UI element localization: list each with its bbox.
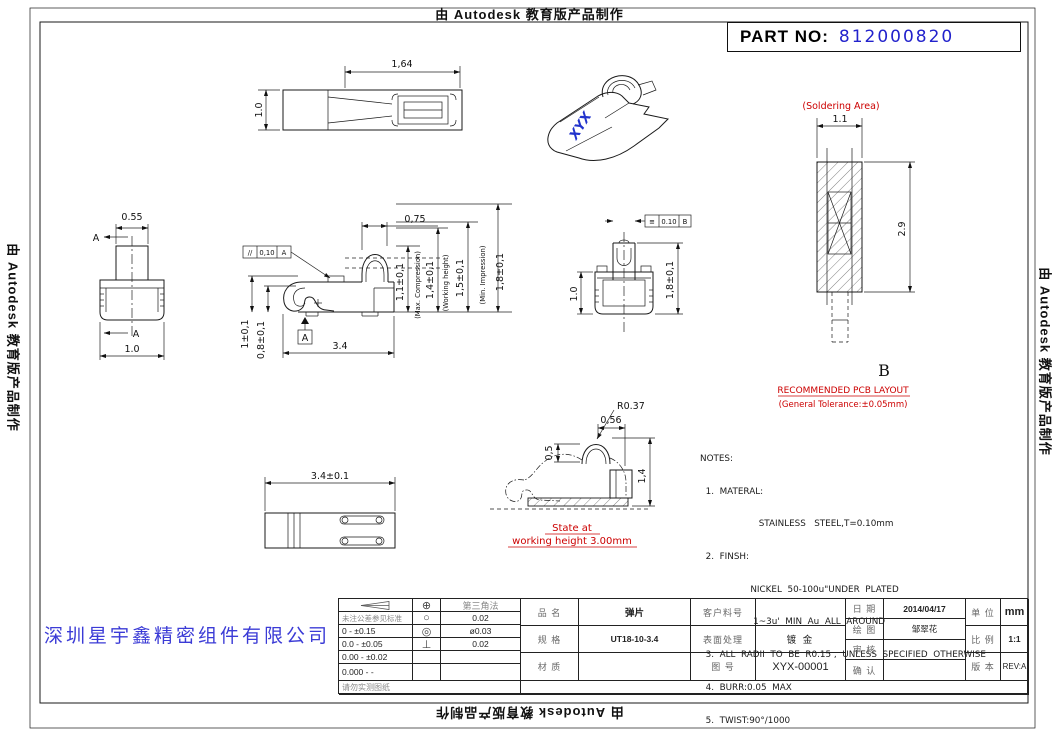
dim-rear-height: 1,8±0,1 <box>665 261 676 299</box>
drawn-by-label: 绘 图 <box>846 619 884 640</box>
section-label-a-top: A <box>93 233 100 244</box>
part-no-value: 812000820 <box>839 27 954 47</box>
stack-label-3: (Min. Impression) <box>479 245 487 304</box>
tolerance-symbol-empty <box>413 651 441 664</box>
customer-pn-label: 客户料号 <box>691 599 756 626</box>
drawing-no-label: 图 号 <box>691 653 756 681</box>
part-no-label: PART NO: <box>740 27 829 47</box>
parallelism-symbol: // <box>248 249 253 257</box>
parallelism-value: 0,10 <box>259 249 274 257</box>
material-label: 材 质 <box>521 653 579 681</box>
note-line: STAINLESS STEEL,T=0.10mm <box>700 519 986 530</box>
tolerance-value: 0.02 <box>441 612 521 625</box>
symmetry-value: 0.10 <box>661 218 676 226</box>
dim-solder-height: 2.9 <box>897 221 908 236</box>
dim-side-height: 1±0,1 <box>240 319 251 348</box>
dim-top-height: 1.0 <box>254 102 265 117</box>
do-not-measure-note: 请勿实测图纸 <box>339 681 521 695</box>
unit-value: mm <box>1001 599 1029 626</box>
datum-flag-a: A <box>302 333 309 344</box>
symmetry-datum: B <box>683 218 688 226</box>
dim-working-gap: 0,5 <box>544 445 555 460</box>
drawn-by-value: 邹翠花 <box>884 619 966 640</box>
position-symbol: ⊕ <box>413 599 441 612</box>
material-value <box>579 653 691 681</box>
stack-dim-4: 1,8±0,1 <box>495 253 506 291</box>
taper-symbol <box>359 600 393 611</box>
note-line: 2. FINSH: <box>700 552 986 563</box>
top-view: 1,64 1.0 <box>254 59 462 130</box>
dim-working-height: 1,4 <box>637 468 648 483</box>
checked-by-value <box>884 640 966 660</box>
note-line: NOTES: <box>700 454 986 465</box>
date-value: 2014/04/17 <box>884 599 966 619</box>
symmetry-symbol: ≡ <box>649 218 655 226</box>
empty-strip <box>521 681 1029 695</box>
date-label: 日 期 <box>846 599 884 619</box>
company-name: 深圳星宇鑫精密组件有限公司 <box>44 621 330 648</box>
unit-label: 单 位 <box>966 599 1001 626</box>
approved-by-label: 确 认 <box>846 660 884 681</box>
revision-value: REV:A <box>1001 653 1029 681</box>
stack-label-1: (Max. Compression) <box>414 251 422 319</box>
tolerance-row-label: 未注公差参见标准 <box>339 612 413 625</box>
dim-front-stem: 0.55 <box>121 212 142 223</box>
checked-by-label: 审 核 <box>846 640 884 660</box>
customer-pn-value <box>756 599 846 626</box>
isometric-view: XYX <box>548 76 668 161</box>
spec-value: UT18-10-3.4 <box>579 626 691 653</box>
revision-label: 版 本 <box>966 653 1001 681</box>
tolerance-value: ø0.03 <box>441 625 521 638</box>
tolerance-row-label: 0.0 - ±0.05 <box>339 638 413 651</box>
dim-side-inner-height: 0,8±0,1 <box>256 321 267 359</box>
concentricity-symbol: ◎ <box>413 625 441 638</box>
soldering-area-view: (Soldering Area) 1.1 2.9 B RECOMMENDED P… <box>777 101 915 410</box>
tolerance-value: 0.02 <box>441 638 521 651</box>
soldering-area-title: (Soldering Area) <box>802 101 879 112</box>
tolerance-row-label: 0.000 - - <box>339 664 413 681</box>
stack-label-2: (Working height) <box>442 254 450 311</box>
stack-dim-3: 1,5±0,1 <box>455 259 466 297</box>
perpendicularity-symbol: ⊥ <box>413 638 441 651</box>
note-line: 1. MATERAL: <box>700 487 986 498</box>
note-line: NICKEL 50-100u"UNDER PLATED <box>700 585 986 596</box>
tolerance-row-label: 0.00 - ±0.02 <box>339 651 413 664</box>
surface-label: 表面处理 <box>691 626 756 653</box>
working-caption-1: State at <box>552 523 592 534</box>
product-name-label: 品 名 <box>521 599 579 626</box>
title-block: ⊕ 第三角法 未注公差参见标准 ○ 0.02 0 - ±0.15 ◎ ø0.03… <box>338 598 1028 694</box>
front-view: 0.55 1.0 A A <box>93 212 164 360</box>
section-label-a-bottom: A <box>133 329 140 340</box>
projection-method: 第三角法 <box>441 599 521 612</box>
dim-top-width: 1,64 <box>391 59 412 70</box>
working-caption-2: working height 3.00mm <box>512 536 632 547</box>
spec-label: 规 格 <box>521 626 579 653</box>
rear-view: 1.0 1,8±0,1 ≡ 0.10 B <box>569 215 691 334</box>
dim-rear-width: 1.0 <box>569 286 580 301</box>
dim-solder-width: 1.1 <box>832 114 847 125</box>
dim-working-radius: R0.37 <box>617 401 645 412</box>
dim-front-width: 1.0 <box>124 344 139 355</box>
circularity-symbol: ○ <box>413 612 441 625</box>
drawing-no-value: XYX-00001 <box>756 653 846 681</box>
dim-working-width: 0,56 <box>600 415 621 426</box>
part-no-box: PART NO: 812000820 <box>727 22 1021 52</box>
dim-side-loop: 0,75 <box>404 214 425 225</box>
pcb-layout-tolerance: (General Tolerance:±0.05mm) <box>779 400 908 410</box>
tolerance-value <box>441 651 521 664</box>
stack-dim-2: 1,4±0,1 <box>425 261 436 299</box>
tolerance-value <box>441 664 521 681</box>
pcb-layout-title: RECOMMENDED PCB LAYOUT <box>777 386 909 396</box>
tolerance-symbol-empty <box>413 664 441 681</box>
approved-by-value <box>884 660 966 681</box>
view-label-b: B <box>878 361 890 380</box>
parallelism-datum: A <box>282 249 287 257</box>
bottom-view: 3.4±0.1 <box>265 471 395 548</box>
side-view: // 0,10 A A 3.4 1±0,1 0,8±0,1 <box>240 204 512 359</box>
dim-bottom-length: 3.4±0.1 <box>311 471 349 482</box>
stack-dim-1: 1,1±0,1 <box>395 263 406 301</box>
scale-value: 1:1 <box>1001 626 1029 653</box>
dim-side-length: 3.4 <box>332 341 347 352</box>
note-line: 5. TWIST:90°/1000 <box>700 716 986 727</box>
scale-label: 比 例 <box>966 626 1001 653</box>
drawing-sheet: 由 Autodesk 教育版产品制作 由 Autodesk 教育版产品制作 由 … <box>0 0 1059 737</box>
surface-value: 镀 金 <box>756 626 846 653</box>
working-state-view: R0.37 0,56 0,5 1,4 State at working heig… <box>490 401 655 547</box>
tolerance-row-label: 0 - ±0.15 <box>339 625 413 638</box>
product-name-value: 弹片 <box>579 599 691 626</box>
taper-symbol-cell <box>339 599 413 612</box>
